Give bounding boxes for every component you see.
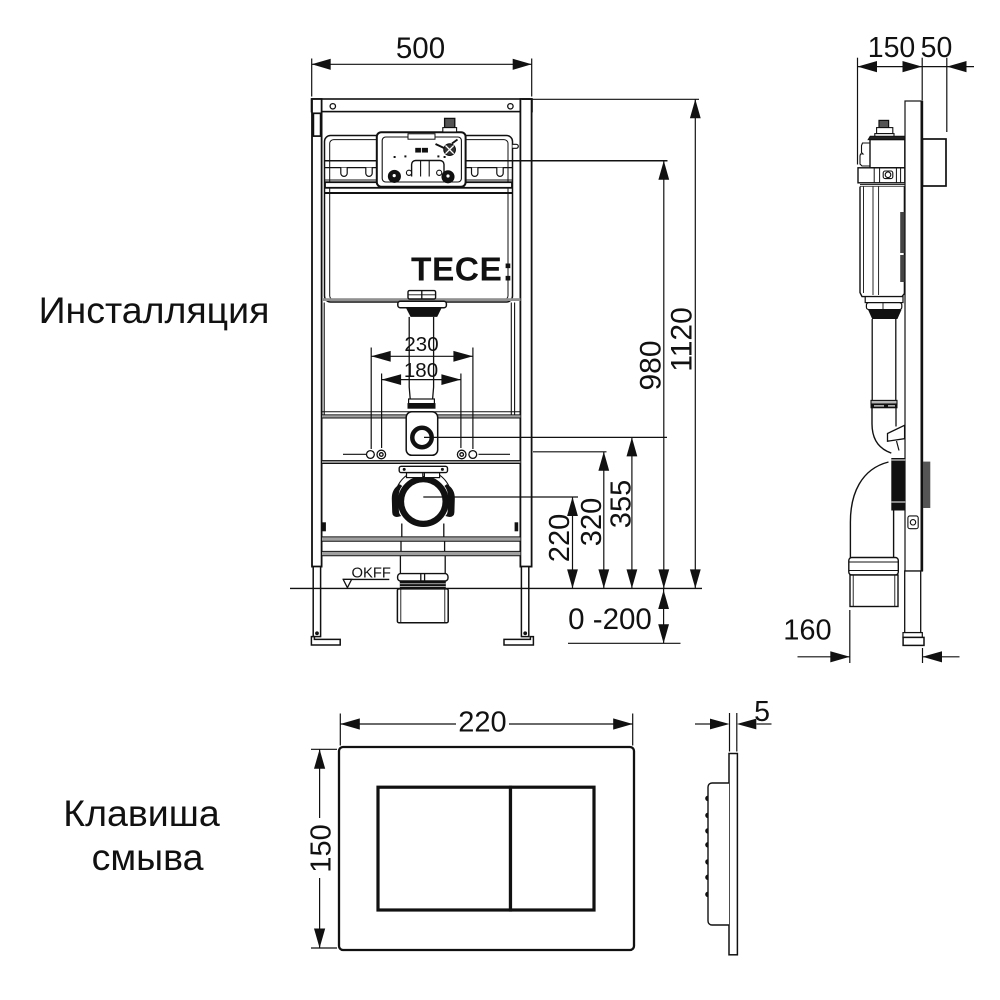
svg-text:230: 230 bbox=[404, 333, 438, 356]
svg-text:смыва: смыва bbox=[92, 836, 204, 878]
svg-text:0 -200: 0 -200 bbox=[568, 603, 652, 636]
svg-text:220: 220 bbox=[458, 707, 506, 739]
svg-text:Клавиша: Клавиша bbox=[63, 792, 220, 834]
svg-text:320: 320 bbox=[576, 498, 608, 546]
svg-text:150: 150 bbox=[868, 32, 916, 64]
svg-text:220: 220 bbox=[544, 514, 576, 562]
svg-text:5: 5 bbox=[754, 696, 770, 728]
svg-text:500: 500 bbox=[396, 32, 445, 65]
svg-text:1120: 1120 bbox=[666, 307, 699, 372]
svg-text:TECE:: TECE: bbox=[411, 252, 514, 289]
svg-text:180: 180 bbox=[404, 359, 438, 382]
svg-text:150: 150 bbox=[306, 824, 338, 872]
svg-text:355: 355 bbox=[606, 480, 638, 528]
svg-text:50: 50 bbox=[921, 32, 953, 64]
svg-text:160: 160 bbox=[783, 615, 831, 647]
svg-text:Инсталляция: Инсталляция bbox=[39, 289, 270, 331]
svg-text:980: 980 bbox=[635, 340, 668, 390]
